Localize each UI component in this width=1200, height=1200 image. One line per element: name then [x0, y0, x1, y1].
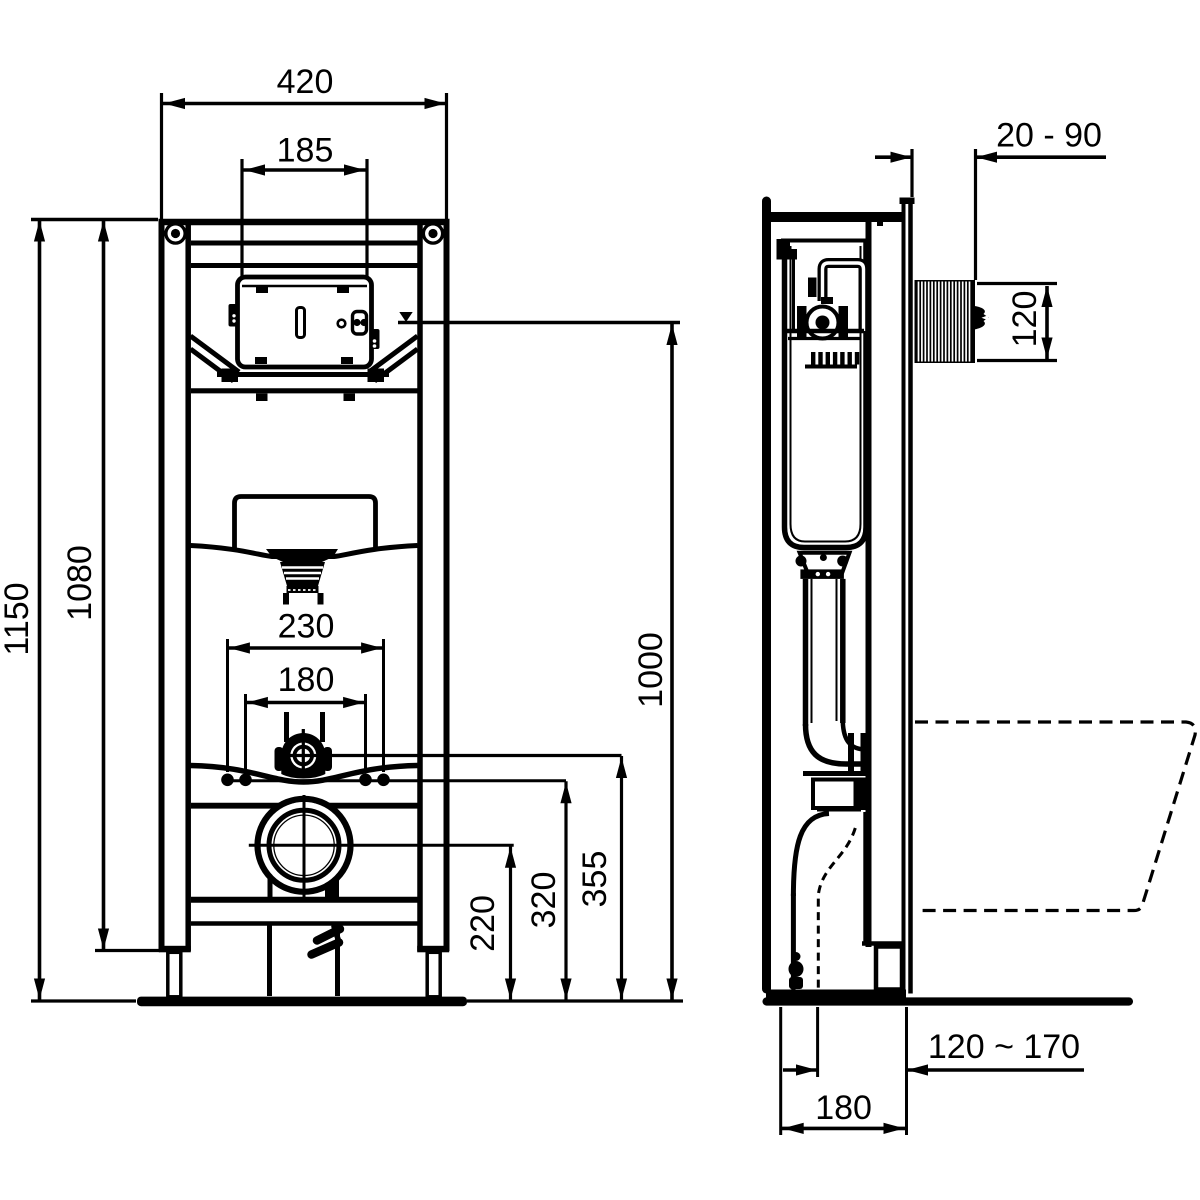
svg-text:1150: 1150 — [0, 582, 36, 655]
svg-text:355: 355 — [576, 851, 614, 908]
svg-text:185: 185 — [277, 132, 334, 170]
svg-text:180: 180 — [278, 661, 335, 699]
svg-text:120 ~ 170: 120 ~ 170 — [928, 1028, 1080, 1066]
svg-text:20 - 90: 20 - 90 — [996, 117, 1102, 155]
svg-text:220: 220 — [464, 895, 502, 952]
svg-text:1000: 1000 — [632, 632, 670, 708]
svg-text:420: 420 — [277, 63, 334, 101]
svg-text:180: 180 — [815, 1089, 872, 1127]
svg-text:1080: 1080 — [61, 545, 99, 621]
svg-text:320: 320 — [525, 872, 563, 929]
svg-text:120: 120 — [1006, 291, 1044, 348]
svg-text:230: 230 — [278, 608, 335, 646]
